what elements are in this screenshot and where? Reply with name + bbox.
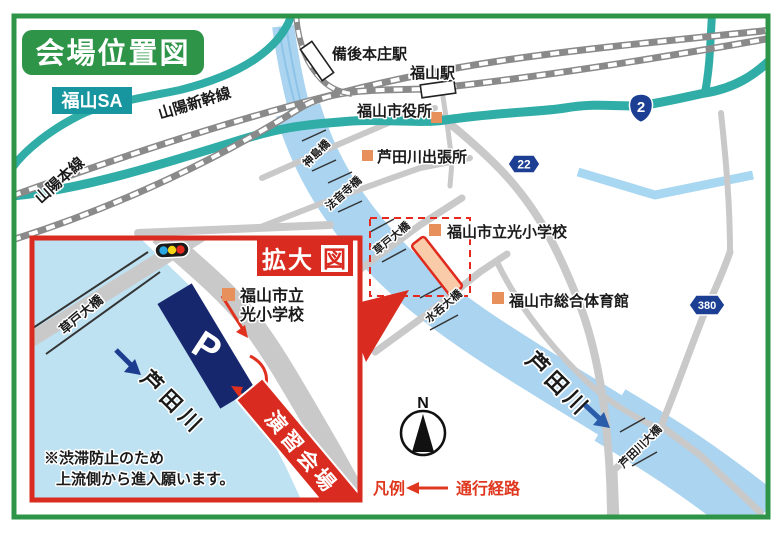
legend-route-label: 通行経路 — [456, 479, 521, 498]
route2-branch — [705, 14, 712, 93]
inset-title-last-char: 図 — [323, 246, 346, 272]
river-office-label: 芦田川出張所 — [377, 148, 467, 166]
inset-note-line1: ※渋滞防止のため — [44, 449, 164, 467]
legend-arrow-head — [406, 482, 419, 494]
inset-school-marker — [0, 288, 13, 301]
legend: 凡例 通行経路 — [373, 479, 521, 498]
road-west-horizontal — [138, 225, 330, 233]
fukuyama-sa-label: 福山SA — [60, 90, 122, 111]
route380-shield: 380 — [689, 295, 725, 315]
inset-title: 拡大 図 — [257, 240, 353, 276]
city-hall-label: 福山市役所 — [356, 102, 432, 120]
road-route380 — [661, 252, 730, 426]
gym-marker — [492, 292, 504, 304]
route2-shield-number: 2 — [637, 99, 645, 116]
school-label: 福山市立光小学校 — [446, 223, 568, 241]
fukuyama-sa-badge: 福山SA — [52, 87, 132, 114]
map-title-badge: 会場位置図 — [22, 30, 204, 75]
map-title-text: 会場位置図 — [35, 36, 190, 70]
school-marker — [429, 224, 441, 236]
inset-school-marker — [222, 288, 235, 301]
fukuyama-station-label: 福山駅 — [409, 64, 456, 82]
legend-title: 凡例 — [373, 479, 405, 498]
compass: N — [401, 395, 445, 455]
city-hall-marker — [431, 112, 442, 123]
inset-note-line2: 上流側から進入願います。 — [56, 470, 235, 488]
route22-shield: 22 — [508, 155, 540, 173]
inset-school-label-line2: 光小学校 — [239, 305, 305, 324]
inset-title-text: 拡大 — [262, 247, 314, 274]
station-fukuyama — [420, 80, 455, 98]
compass-north-label: N — [417, 395, 429, 412]
inset-school-label-line1: 福山市立 — [239, 286, 304, 305]
gym-label: 福山市総合体育館 — [508, 292, 629, 310]
river-office-marker — [362, 150, 373, 161]
station-rect — [420, 80, 455, 98]
venue-location-map: 2 22 380 山陽新幹線 山陽本線 備後本庄駅 福山駅 福山市役所 芦田川出… — [0, 0, 780, 533]
traffic-light-icon — [155, 242, 190, 259]
sanyo-line-label: 山陽本線 — [31, 154, 88, 208]
map-canvas: 2 22 380 山陽新幹線 山陽本線 備後本庄駅 福山駅 福山市役所 芦田川出… — [0, 0, 780, 533]
route380-shield-number: 380 — [698, 300, 716, 312]
route22-shield-number: 22 — [517, 158, 531, 172]
bingo-honjo-label: 備後本庄駅 — [332, 45, 408, 63]
route2-shield: 2 — [629, 94, 652, 123]
road-station-south — [443, 97, 452, 186]
